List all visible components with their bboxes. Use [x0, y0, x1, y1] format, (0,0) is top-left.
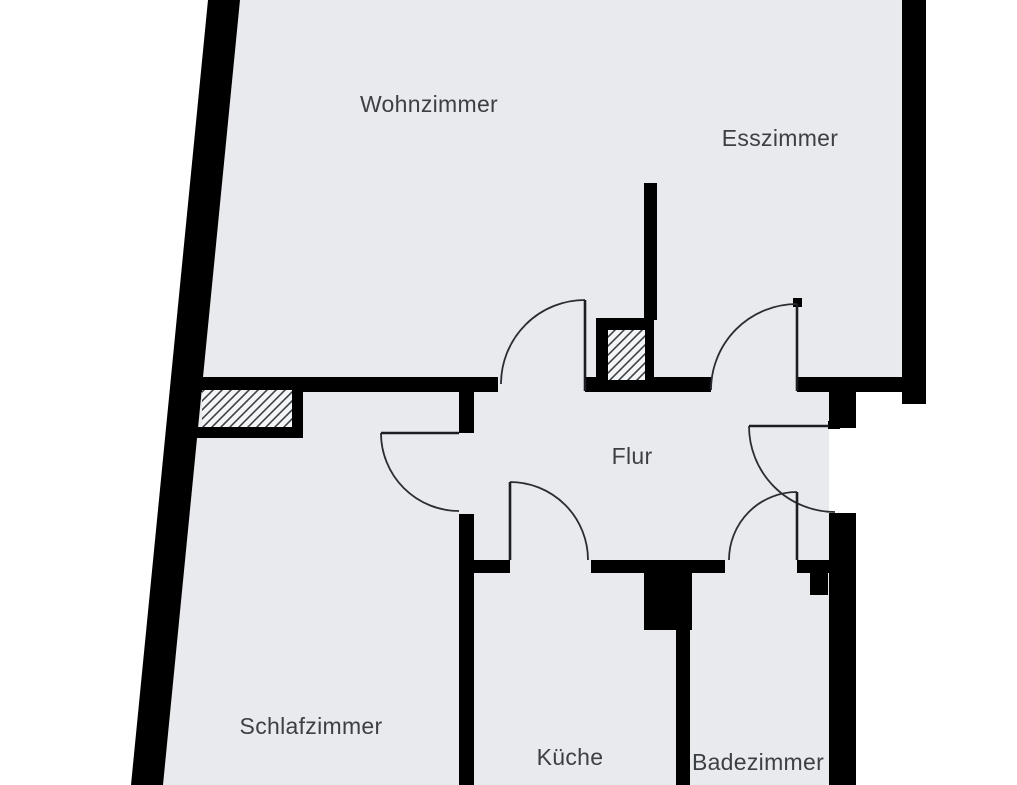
- wall-horizontal-right-segment: [797, 377, 926, 392]
- floor-plan-drawing: Wohnzimmer Esszimmer Flur Schlafzimmer K…: [0, 0, 1017, 785]
- wall-schlafzimmer-upper: [459, 392, 474, 433]
- wall-exterior-right-upper: [902, 0, 926, 404]
- shaft-schlafzimmer-hatch: [202, 390, 292, 427]
- shaft-kueche-solid: [644, 560, 692, 630]
- wall-horizontal-left-segment: [188, 377, 498, 392]
- wall-badezimmer-corner-step: [810, 573, 828, 595]
- room-label-esszimmer: Esszimmer: [722, 125, 838, 151]
- room-label-badezimmer: Badezimmer: [692, 749, 824, 775]
- shaft-flur-hatch: [608, 330, 645, 380]
- door-cap-flur-east: [828, 421, 840, 429]
- shaft-schlafzimmer-border-bottom: [197, 427, 303, 438]
- wall-flur-bottom-right: [797, 560, 829, 573]
- wall-kueche-badezimmer: [676, 630, 690, 785]
- room-label-wohnzimmer: Wohnzimmer: [360, 91, 498, 117]
- room-label-kueche: Küche: [537, 744, 604, 770]
- wall-stub-wohnzimmer-esszimmer: [644, 183, 657, 320]
- room-label-flur: Flur: [612, 443, 653, 469]
- wall-exterior-right-lower: [829, 513, 856, 785]
- wall-flur-bottom-left: [472, 560, 510, 573]
- room-label-schlafzimmer: Schlafzimmer: [240, 713, 383, 739]
- floor-plan-canvas: Wohnzimmer Esszimmer Flur Schlafzimmer K…: [0, 0, 1017, 785]
- wall-schlafzimmer-lower: [459, 514, 474, 785]
